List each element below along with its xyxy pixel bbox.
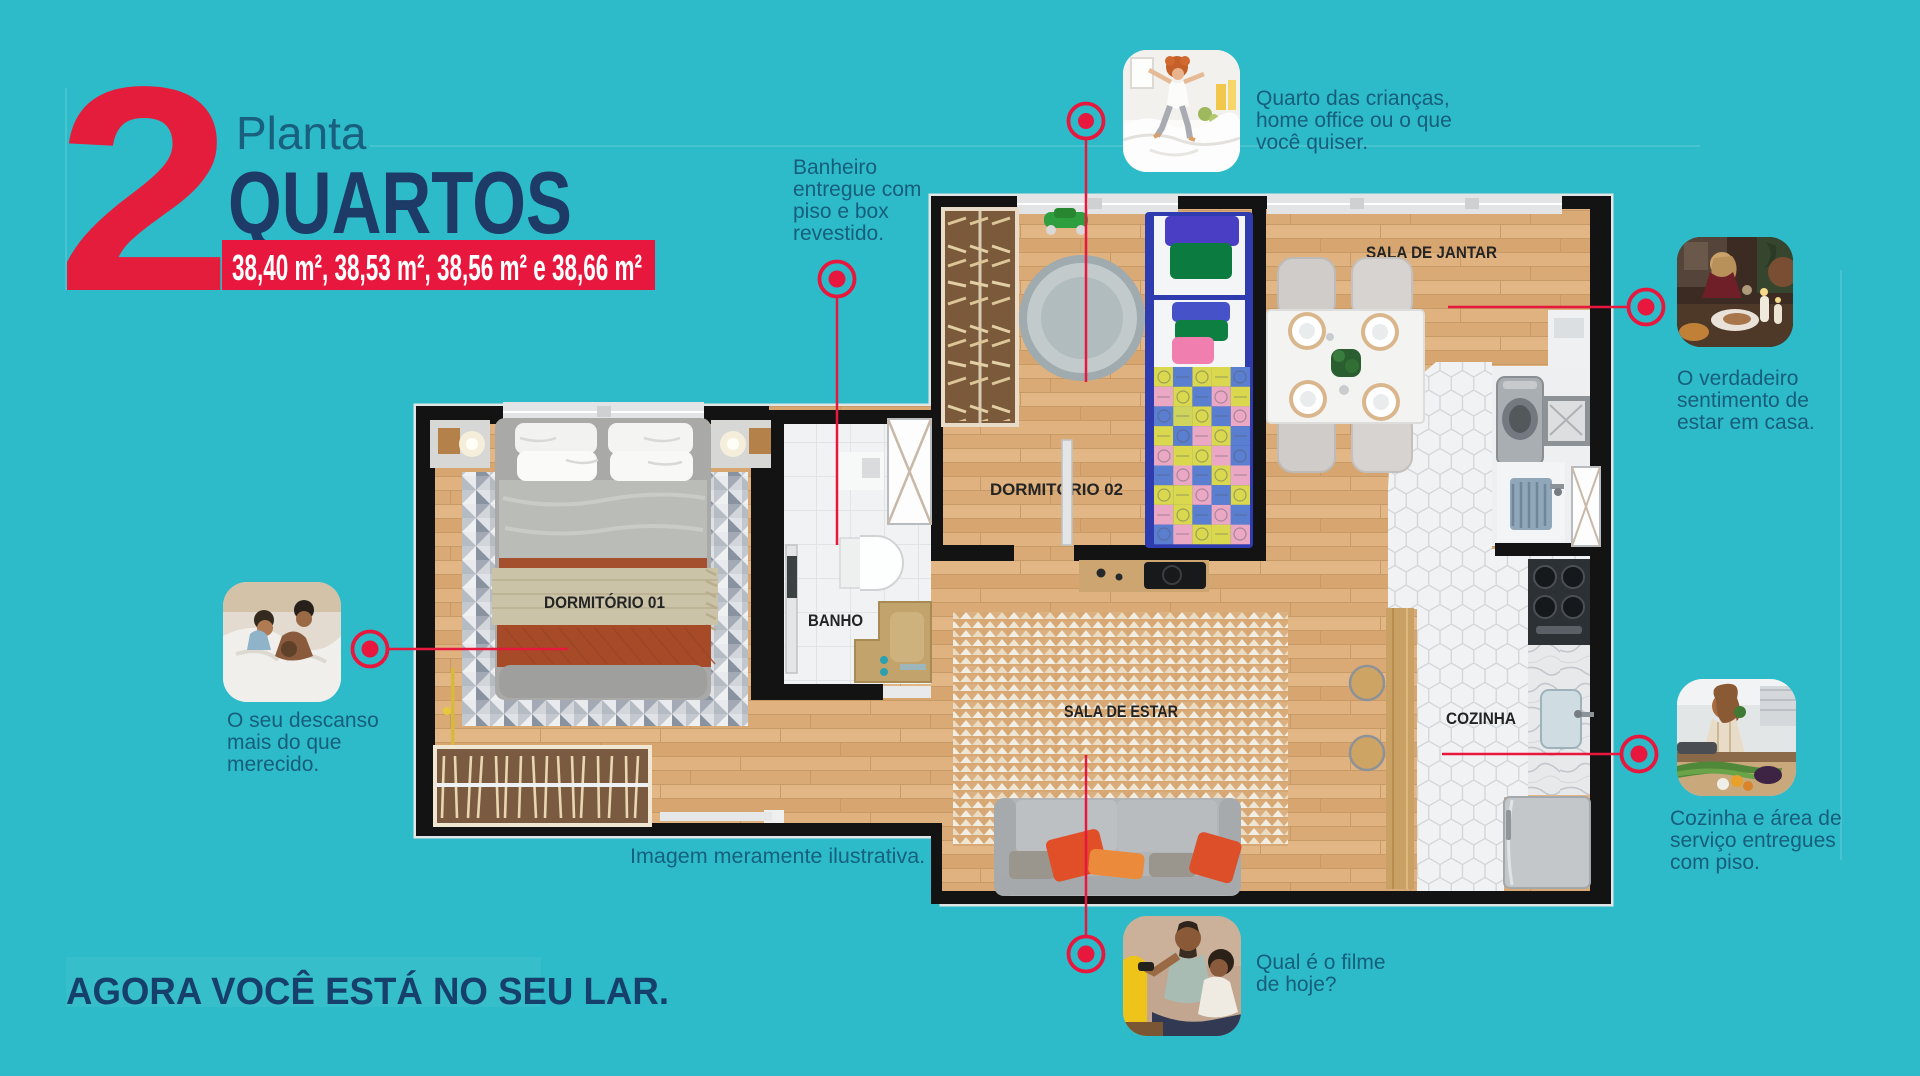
svg-text:QUARTOS: QUARTOS [228,153,572,252]
svg-text:serviço entregues: serviço entregues [1670,829,1836,852]
svg-text:O verdadeiro: O verdadeiro [1677,367,1798,390]
svg-text:Imagem meramente ilustrativa.: Imagem meramente ilustrativa. [630,844,925,868]
svg-text:merecido.: merecido. [227,753,319,776]
svg-text:sentimento de: sentimento de [1677,389,1809,412]
svg-text:home office ou o que: home office ou o que [1256,109,1452,132]
svg-text:COZINHA: COZINHA [1446,710,1516,728]
svg-text:2: 2 [56,26,233,352]
svg-text:entregue com: entregue com [793,178,921,201]
svg-text:Planta: Planta [236,107,367,159]
svg-text:Banheiro: Banheiro [793,156,877,179]
svg-text:de hoje?: de hoje? [1256,973,1337,996]
svg-text:O seu descanso: O seu descanso [227,709,379,732]
svg-text:mais do que: mais do que [227,731,341,754]
svg-text:estar em casa.: estar em casa. [1677,411,1815,434]
svg-text:SALA DE ESTAR: SALA DE ESTAR [1064,703,1178,721]
svg-text:DORMITÓRIO 01: DORMITÓRIO 01 [544,593,665,612]
svg-text:revestido.: revestido. [793,222,884,245]
svg-text:com piso.: com piso. [1670,851,1760,874]
svg-text:BANHO: BANHO [808,612,863,630]
svg-text:Qual é o filme: Qual é o filme [1256,951,1386,974]
svg-text:38,40 m², 38,53 m², 38,56 m² e: 38,40 m², 38,53 m², 38,56 m² e 38,66 m² [232,247,642,288]
svg-text:AGORA VOCÊ ESTÁ NO SEU LAR.: AGORA VOCÊ ESTÁ NO SEU LAR. [66,969,669,1013]
svg-text:DORMITÓRIO 02: DORMITÓRIO 02 [990,480,1123,499]
svg-text:piso e box: piso e box [793,200,889,223]
svg-text:Quarto das crianças,: Quarto das crianças, [1256,87,1450,110]
svg-text:você quiser.: você quiser. [1256,131,1368,154]
svg-text:Cozinha e área de: Cozinha e área de [1670,807,1842,830]
